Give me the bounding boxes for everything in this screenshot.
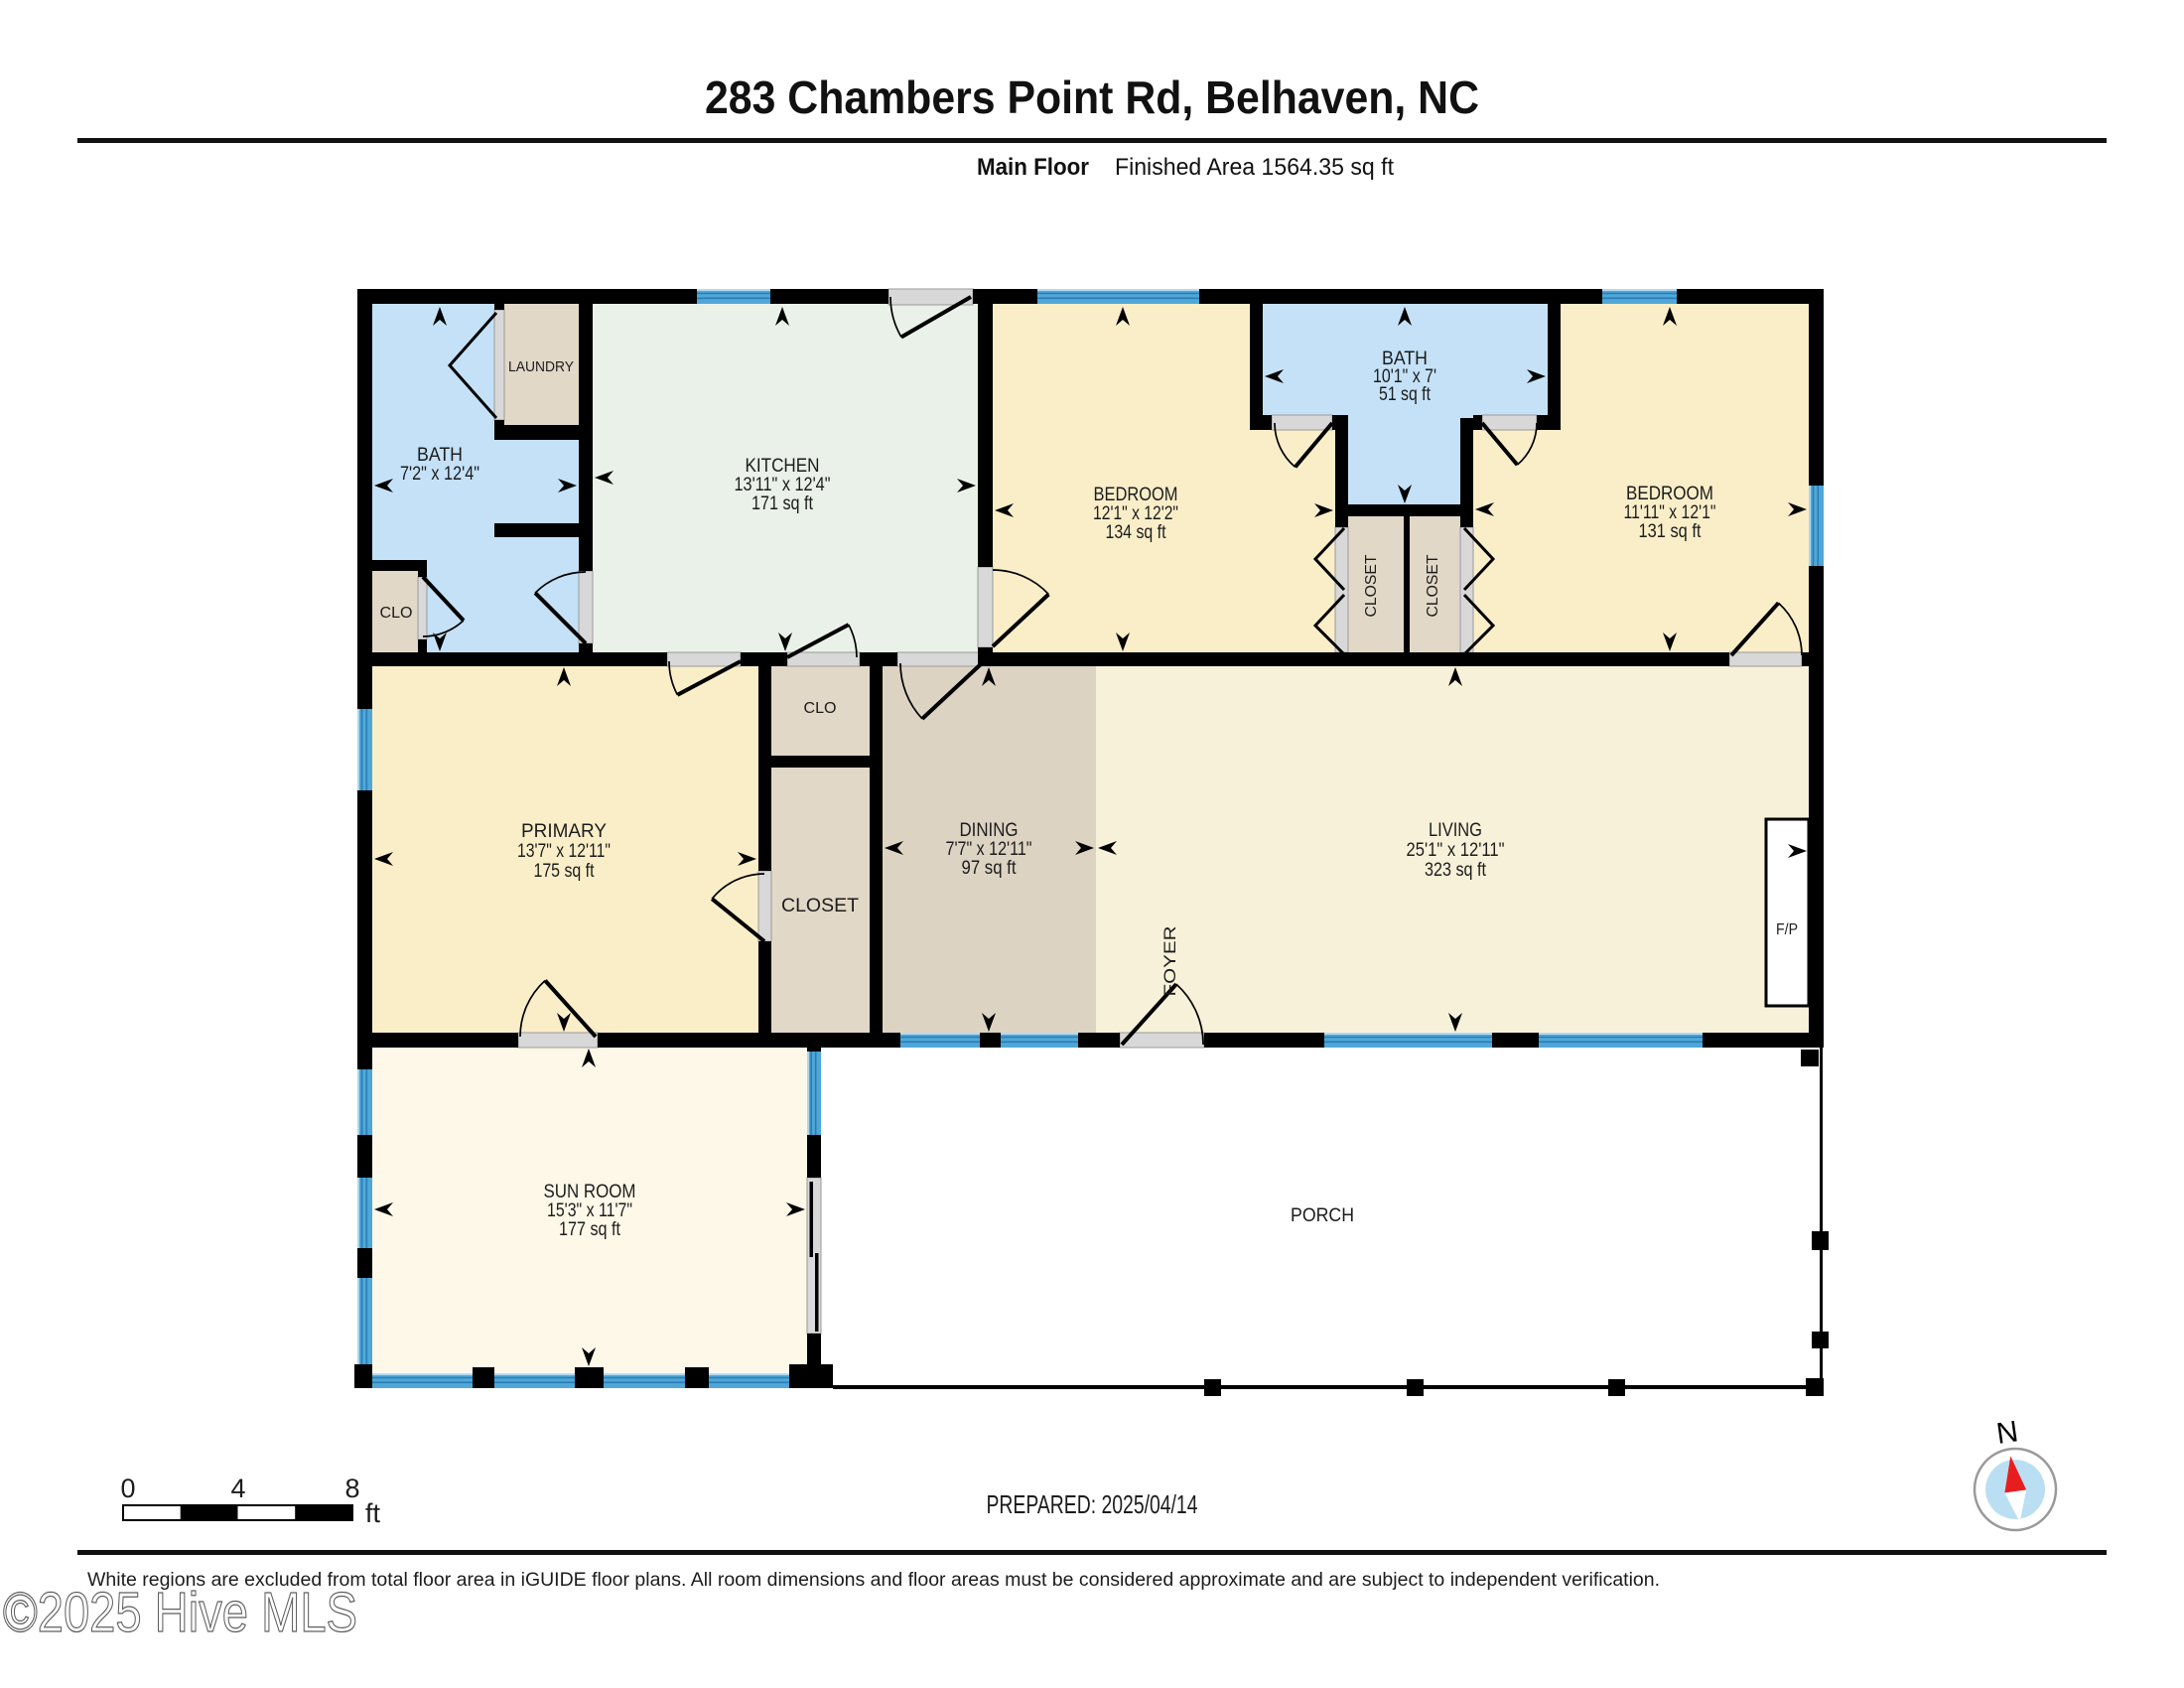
svg-text:8: 8 bbox=[344, 1474, 359, 1503]
svg-text:11'11" x 12'1": 11'11" x 12'1" bbox=[1624, 502, 1716, 523]
svg-text:7'7" x 12'11": 7'7" x 12'11" bbox=[946, 839, 1032, 860]
svg-text:Finished Area 1564.35 sq ft: Finished Area 1564.35 sq ft bbox=[1115, 154, 1394, 181]
svg-text:©2025 Hive MLS: ©2025 Hive MLS bbox=[3, 1581, 357, 1644]
svg-text:F/P: F/P bbox=[1776, 921, 1798, 938]
svg-text:SUN ROOM: SUN ROOM bbox=[544, 1182, 636, 1202]
svg-text:0: 0 bbox=[120, 1474, 135, 1503]
svg-text:ft: ft bbox=[365, 1498, 381, 1528]
svg-text:LAUNDRY: LAUNDRY bbox=[508, 359, 574, 375]
svg-text:Main Floor: Main Floor bbox=[977, 154, 1089, 181]
svg-text:BATH: BATH bbox=[417, 445, 463, 466]
svg-text:15'3" x 11'7": 15'3" x 11'7" bbox=[547, 1200, 632, 1221]
svg-text:175 sq ft: 175 sq ft bbox=[534, 861, 596, 882]
svg-text:CLO: CLO bbox=[804, 700, 837, 717]
svg-text:51 sq ft: 51 sq ft bbox=[1379, 384, 1432, 405]
svg-text:7'2" x 12'4": 7'2" x 12'4" bbox=[400, 464, 479, 485]
svg-text:4: 4 bbox=[230, 1474, 245, 1503]
svg-text:KITCHEN: KITCHEN bbox=[746, 456, 820, 477]
svg-text:LIVING: LIVING bbox=[1429, 820, 1482, 841]
svg-text:13'7" x 12'11": 13'7" x 12'11" bbox=[517, 841, 611, 862]
svg-text:25'1" x 12'11": 25'1" x 12'11" bbox=[1407, 840, 1505, 861]
svg-text:CLO: CLO bbox=[380, 605, 413, 622]
svg-text:CLOSET: CLOSET bbox=[1425, 554, 1441, 618]
svg-text:177 sq ft: 177 sq ft bbox=[559, 1219, 621, 1240]
svg-text:BEDROOM: BEDROOM bbox=[1094, 485, 1178, 505]
svg-text:323 sq ft: 323 sq ft bbox=[1425, 860, 1487, 881]
svg-text:134 sq ft: 134 sq ft bbox=[1106, 522, 1167, 543]
svg-text:PREPARED: 2025/04/14: PREPARED: 2025/04/14 bbox=[987, 1489, 1198, 1519]
svg-text:12'1" x 12'2": 12'1" x 12'2" bbox=[1093, 503, 1178, 524]
svg-text:CLOSET: CLOSET bbox=[781, 896, 859, 916]
svg-text:171 sq ft: 171 sq ft bbox=[751, 493, 814, 514]
svg-text:13'11" x 12'4": 13'11" x 12'4" bbox=[735, 475, 831, 495]
svg-text:283 Chambers Point Rd, Belhave: 283 Chambers Point Rd, Belhaven, NC bbox=[705, 71, 1479, 123]
svg-text:PORCH: PORCH bbox=[1291, 1205, 1354, 1226]
svg-text:PRIMARY: PRIMARY bbox=[521, 821, 607, 842]
svg-text:131 sq ft: 131 sq ft bbox=[1639, 521, 1703, 542]
svg-text:FOYER: FOYER bbox=[1160, 926, 1179, 997]
svg-text:DINING: DINING bbox=[960, 820, 1019, 841]
svg-text:BEDROOM: BEDROOM bbox=[1626, 484, 1713, 504]
svg-text:CLOSET: CLOSET bbox=[1363, 554, 1380, 618]
svg-text:97 sq ft: 97 sq ft bbox=[962, 858, 1018, 879]
svg-text:N: N bbox=[1994, 1415, 2020, 1451]
